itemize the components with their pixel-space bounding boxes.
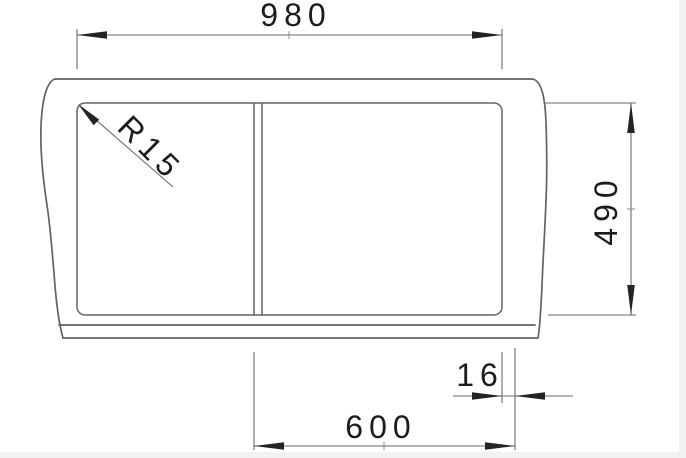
dimension-edge-offset: 16 xyxy=(453,348,573,450)
cabinet-dimension-label: 600 xyxy=(345,409,416,445)
cabinet-arrow-right-icon xyxy=(485,442,515,450)
depth-arrow-top-icon xyxy=(627,103,635,133)
radius-arrow-icon xyxy=(78,104,99,125)
depth-dimension-label: 490 xyxy=(588,174,624,245)
radius-callout: R15 xyxy=(78,104,191,188)
outline-left-break-edge xyxy=(41,79,63,338)
dimension-overall-width: 980 xyxy=(77,0,502,69)
page-edge-bottom xyxy=(0,452,686,458)
depth-arrow-bottom-icon xyxy=(627,285,635,315)
dimension-overall-depth: 490 xyxy=(545,103,636,315)
sink-dimension-diagram: R15 980 490 16 600 xyxy=(0,0,686,458)
cabinet-arrow-left-icon xyxy=(254,442,284,450)
sink-outer-outline xyxy=(41,79,547,338)
width-arrow-right-icon xyxy=(472,31,502,39)
offset-arrow-left-icon xyxy=(472,392,502,400)
outline-right-break-edge xyxy=(533,79,547,338)
width-arrow-left-icon xyxy=(77,31,107,39)
page-edge-right xyxy=(679,0,686,458)
offset-arrow-right-icon xyxy=(515,392,545,400)
radius-label: R15 xyxy=(111,108,191,188)
technical-drawing-canvas: R15 980 490 16 600 xyxy=(0,0,686,458)
width-dimension-label: 980 xyxy=(260,0,331,33)
offset-dimension-label: 16 xyxy=(456,357,504,393)
